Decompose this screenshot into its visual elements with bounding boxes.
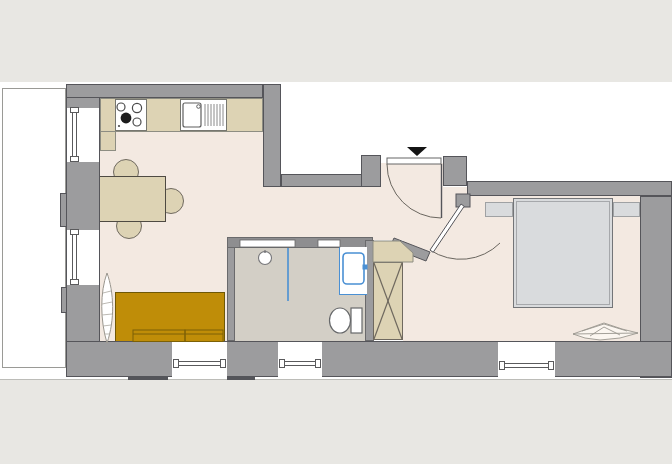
potted-plant-leaf	[102, 273, 113, 343]
wardrobe-cross	[374, 263, 402, 339]
bath-niche	[318, 240, 340, 247]
plan-vector-overlay	[0, 0, 672, 464]
decor-plant	[573, 323, 638, 340]
floor-plan	[0, 0, 672, 464]
bed-mattress-line	[517, 202, 610, 305]
entrance-triangle-marker	[407, 147, 427, 156]
bathroom-door	[430, 204, 500, 259]
shower-drain	[259, 250, 272, 264]
sofa-cushions	[133, 330, 223, 342]
cooktop-burners	[117, 103, 142, 127]
sink-drainer-lines	[205, 104, 223, 126]
bath-niche	[240, 240, 295, 247]
sink-basin	[183, 103, 201, 127]
entry-door	[387, 158, 442, 218]
washbasin	[343, 253, 368, 284]
toilet	[330, 308, 363, 333]
